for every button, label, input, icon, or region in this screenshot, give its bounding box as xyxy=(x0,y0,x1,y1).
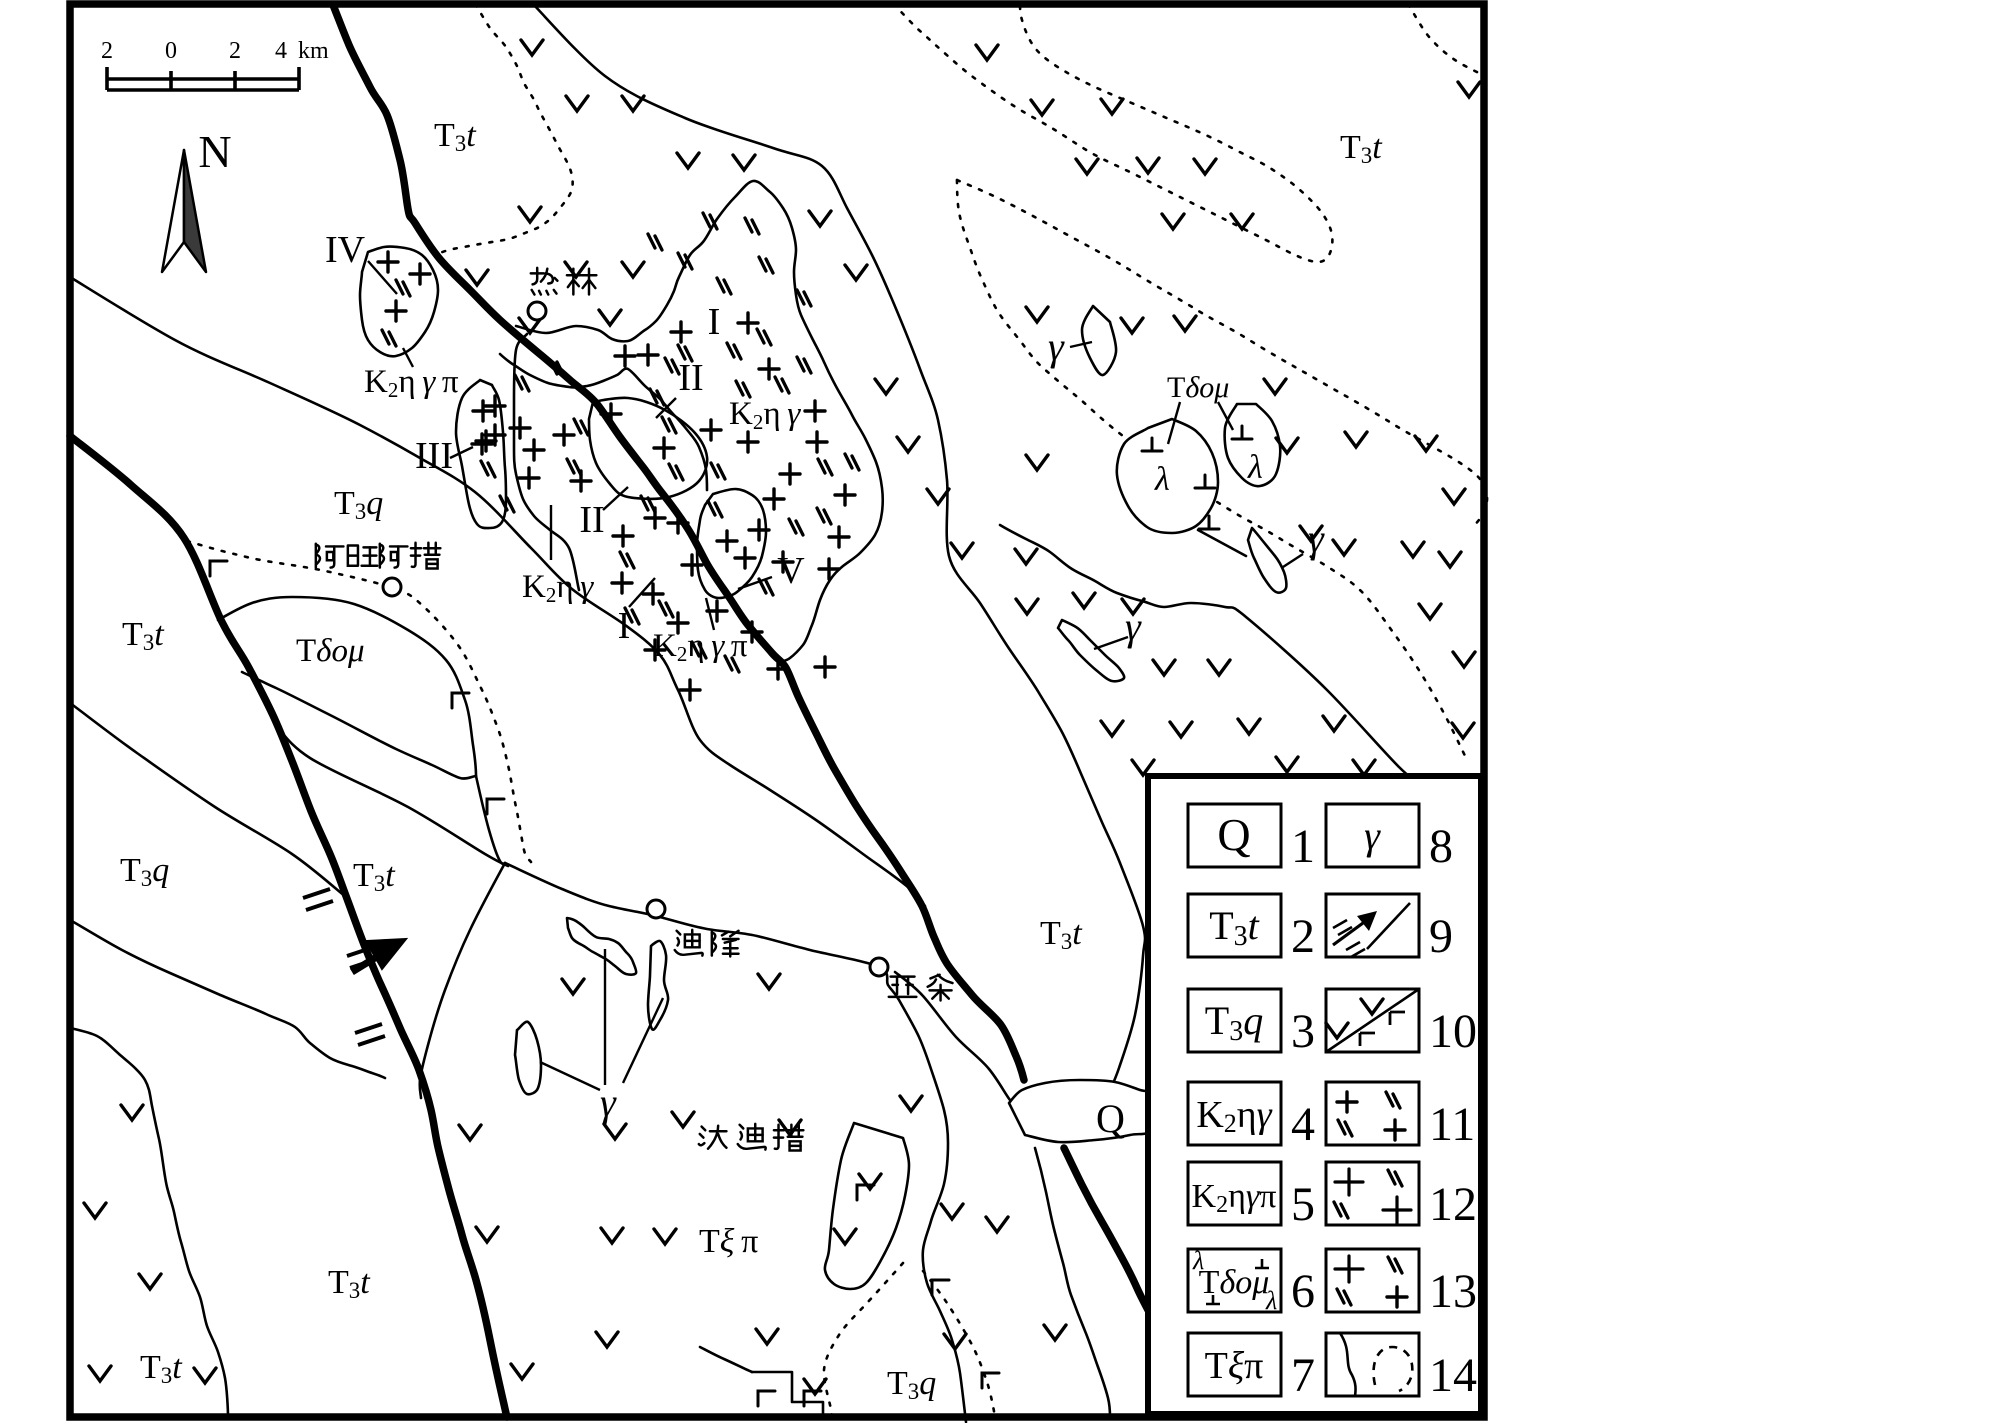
svg-text:3: 3 xyxy=(1291,1005,1315,1058)
svg-text:λ: λ xyxy=(1265,1286,1277,1315)
svg-text:III: III xyxy=(415,435,453,477)
svg-text:9: 9 xyxy=(1429,910,1453,963)
svg-text:0: 0 xyxy=(165,38,177,64)
svg-text:Q: Q xyxy=(1217,809,1250,860)
svg-text:4: 4 xyxy=(275,38,287,64)
svg-text:II: II xyxy=(678,357,703,399)
svg-text:K2η γ π: K2η γ π xyxy=(364,364,459,402)
svg-text:IV: IV xyxy=(325,229,366,271)
svg-text:I: I xyxy=(618,605,631,647)
svg-text:7: 7 xyxy=(1291,1349,1315,1402)
svg-text:K2η γ: K2η γ xyxy=(522,569,594,607)
svg-text:λ: λ xyxy=(1192,1246,1204,1275)
svg-text:V: V xyxy=(777,550,805,592)
svg-text:2: 2 xyxy=(1291,910,1315,963)
svg-text:N: N xyxy=(198,126,231,177)
svg-text:γ: γ xyxy=(1048,324,1065,369)
svg-text:K2η γ π: K2η γ π xyxy=(653,628,748,666)
svg-text:I: I xyxy=(708,301,721,343)
svg-text:Tδομ: Tδομ xyxy=(1167,371,1229,404)
svg-text:Tδομ: Tδομ xyxy=(1199,1264,1270,1301)
svg-text:Q: Q xyxy=(1096,1096,1125,1141)
svg-text:λ: λ xyxy=(1247,449,1263,486)
svg-text:5: 5 xyxy=(1291,1178,1315,1231)
svg-text:2: 2 xyxy=(229,38,241,64)
svg-text:13: 13 xyxy=(1429,1265,1477,1318)
svg-text:γ: γ xyxy=(1125,604,1142,649)
svg-text:6: 6 xyxy=(1291,1265,1315,1318)
svg-text:λ: λ xyxy=(1154,461,1170,498)
svg-text:Tξ π: Tξ π xyxy=(699,1223,758,1260)
svg-text:K2ηγπ: K2ηγπ xyxy=(1192,1178,1277,1218)
svg-text:8: 8 xyxy=(1429,820,1453,873)
svg-text:12: 12 xyxy=(1429,1178,1477,1231)
svg-text:γ: γ xyxy=(1308,516,1325,561)
svg-text:Tξπ: Tξπ xyxy=(1205,1345,1264,1387)
svg-text:γ: γ xyxy=(1364,813,1381,858)
svg-text:γ: γ xyxy=(600,1080,617,1125)
svg-text:10: 10 xyxy=(1429,1005,1477,1058)
svg-text:14: 14 xyxy=(1429,1349,1477,1402)
svg-text:11: 11 xyxy=(1429,1098,1475,1151)
svg-text:4: 4 xyxy=(1291,1098,1315,1151)
svg-text:2: 2 xyxy=(101,38,113,64)
svg-text:II: II xyxy=(579,499,604,541)
svg-text:km: km xyxy=(298,38,329,64)
svg-text:Tδομ: Tδομ xyxy=(296,633,365,669)
svg-text:K2η γ: K2η γ xyxy=(729,396,801,434)
svg-text:1: 1 xyxy=(1291,820,1315,873)
